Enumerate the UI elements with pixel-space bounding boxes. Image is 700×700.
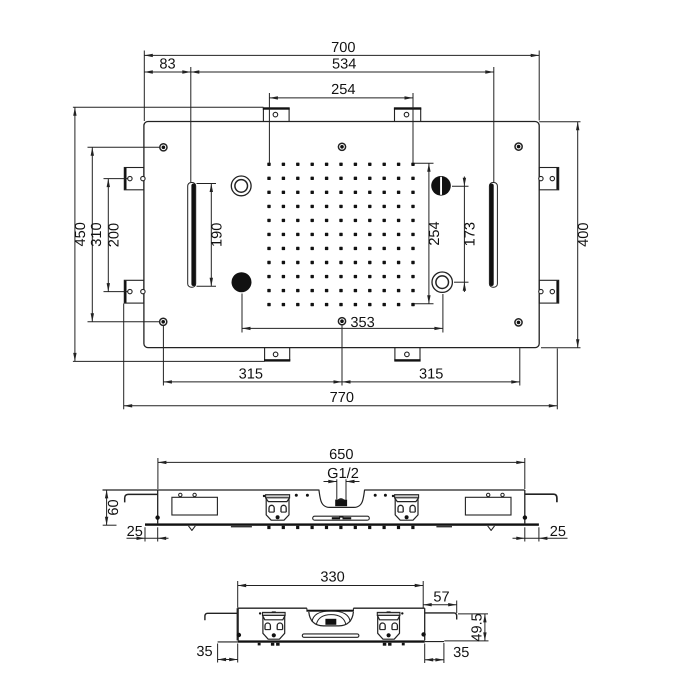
svg-text:190: 190 xyxy=(209,223,225,247)
svg-text:35: 35 xyxy=(453,645,469,661)
svg-text:770: 770 xyxy=(330,390,354,406)
svg-text:173: 173 xyxy=(463,222,479,246)
svg-text:25: 25 xyxy=(550,524,566,540)
svg-text:49.5: 49.5 xyxy=(469,613,485,641)
svg-text:25: 25 xyxy=(127,524,143,540)
svg-text:700: 700 xyxy=(331,40,355,56)
svg-text:353: 353 xyxy=(350,315,374,331)
svg-text:35: 35 xyxy=(196,644,212,660)
svg-text:400: 400 xyxy=(576,223,592,247)
svg-text:60: 60 xyxy=(106,499,122,515)
svg-text:450: 450 xyxy=(73,222,89,246)
svg-text:310: 310 xyxy=(89,222,105,246)
svg-text:330: 330 xyxy=(320,570,344,586)
svg-text:G1/2: G1/2 xyxy=(327,466,359,482)
svg-text:254: 254 xyxy=(427,221,443,245)
svg-text:57: 57 xyxy=(433,590,449,606)
svg-text:200: 200 xyxy=(106,223,122,247)
svg-text:650: 650 xyxy=(329,447,353,463)
svg-text:83: 83 xyxy=(159,56,175,72)
svg-text:534: 534 xyxy=(332,57,356,73)
svg-text:315: 315 xyxy=(419,366,443,382)
svg-text:254: 254 xyxy=(331,82,355,98)
svg-text:315: 315 xyxy=(239,366,263,382)
